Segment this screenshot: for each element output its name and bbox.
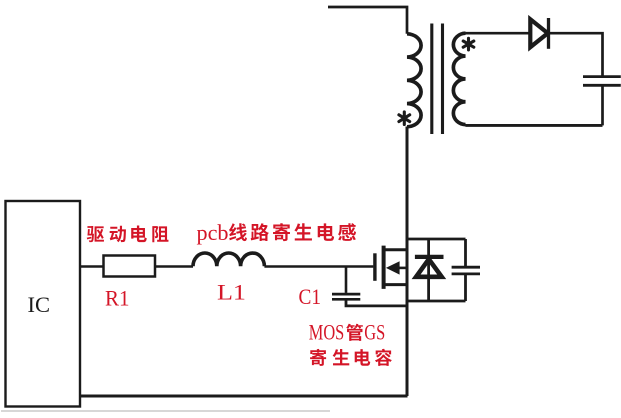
- svg-text:pcb: pcb: [197, 220, 229, 245]
- svg-text:IC: IC: [28, 292, 51, 317]
- svg-text:R1: R1: [105, 285, 130, 310]
- svg-text:MOS: MOS: [309, 320, 345, 345]
- svg-text:L1: L1: [217, 280, 246, 305]
- svg-text:C1: C1: [299, 284, 322, 309]
- svg-text:GS: GS: [364, 320, 385, 345]
